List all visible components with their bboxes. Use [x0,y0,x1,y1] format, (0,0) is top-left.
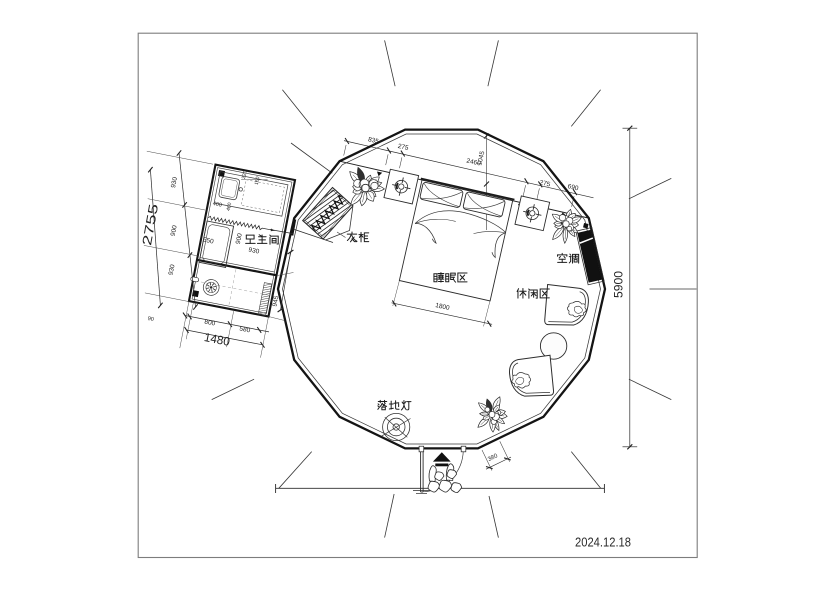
svg-text:2024.12.18: 2024.12.18 [575,536,631,550]
svg-text:90: 90 [147,316,154,323]
svg-text:5900: 5900 [614,271,626,298]
